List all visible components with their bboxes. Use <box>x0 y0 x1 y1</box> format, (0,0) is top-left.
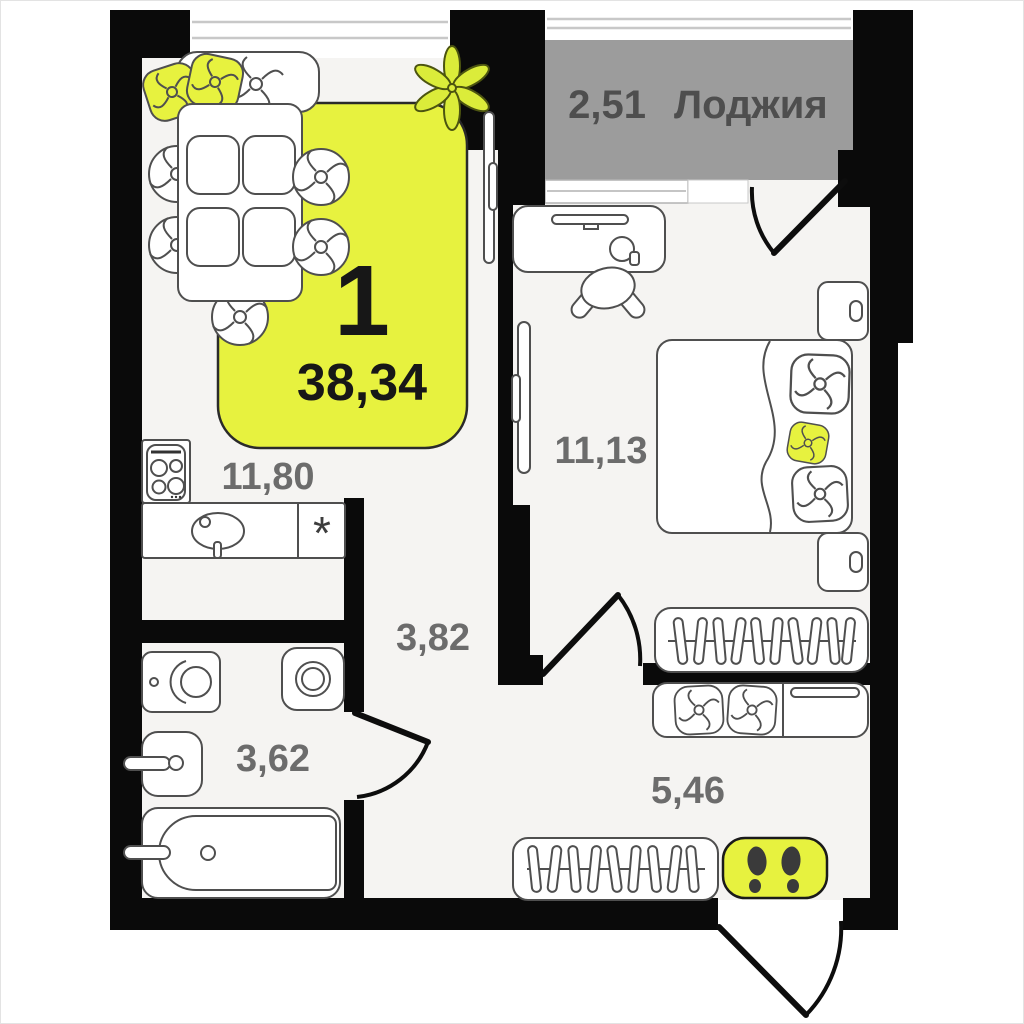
entrance-door <box>719 921 841 1015</box>
bench <box>653 683 868 737</box>
toilet-icon <box>282 648 344 710</box>
floorplan-svg: 1 38,34 <box>0 0 1024 1024</box>
nightstand <box>818 533 868 591</box>
area-label-hallway: 3,82 <box>396 617 470 659</box>
area-label-entry: 5,46 <box>651 770 725 812</box>
area-label-bathroom: 3,62 <box>236 738 310 780</box>
bed-icon <box>657 340 852 533</box>
wardrobe-hangers-icon <box>655 608 868 672</box>
loggia-label: 2,51 Лоджия <box>568 83 828 127</box>
pillow-icon <box>791 465 848 522</box>
kitchen-window <box>190 10 450 58</box>
total-area: 38,34 <box>297 354 427 412</box>
pillow-icon <box>790 354 850 414</box>
floorplan-page: 1 38,34 <box>0 0 1024 1024</box>
placemat <box>187 208 239 266</box>
placemat <box>187 136 239 194</box>
balcony-threshold <box>688 180 748 203</box>
desk-icon <box>513 206 665 272</box>
washing-machine-icon <box>142 652 220 712</box>
kitchen-counter: * <box>142 503 345 559</box>
dining-table <box>178 104 302 301</box>
loggia-area: 2,51 <box>568 83 646 127</box>
area-label-kitchen: 11,80 <box>222 456 315 498</box>
stove-icon <box>142 440 190 503</box>
entrance-badge <box>723 838 827 898</box>
monitor-icon <box>552 215 628 224</box>
wardrobe-hangers-icon <box>513 838 718 900</box>
cushion-icon <box>674 685 724 735</box>
faucet-icon <box>124 846 170 859</box>
faucet-icon <box>124 757 170 770</box>
placemat <box>243 136 295 194</box>
chair-icon <box>293 219 349 275</box>
placemat <box>243 208 295 266</box>
pillow-icon <box>785 420 830 465</box>
fridge-symbol: * <box>313 507 331 559</box>
nightstand <box>818 282 868 340</box>
cushion-icon <box>726 684 777 735</box>
loggia-bottom-window <box>545 180 748 203</box>
faucet-icon <box>214 542 221 558</box>
bathtub-icon <box>124 808 340 898</box>
area-label-bedroom: 11,13 <box>555 430 648 472</box>
chair-icon <box>293 149 349 205</box>
loggia-name: Лоджия <box>674 83 828 127</box>
